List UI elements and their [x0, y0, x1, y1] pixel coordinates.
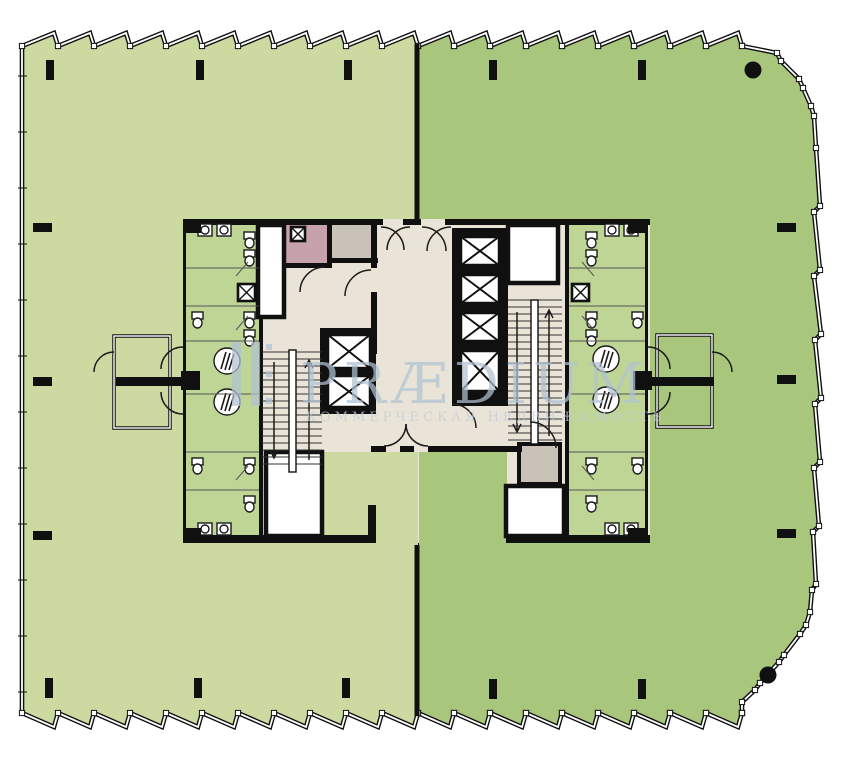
column: [33, 223, 52, 232]
column: [33, 377, 52, 386]
toilet-icon: [586, 312, 597, 328]
toilet-icon: [192, 312, 203, 328]
room-gray-top: [332, 225, 376, 262]
facade-node: [91, 710, 96, 715]
toilet-icon: [244, 312, 255, 328]
facade-node: [487, 710, 492, 715]
elevator-icon: [460, 236, 500, 266]
facade-node: [343, 710, 348, 715]
column: [489, 679, 497, 699]
lobby-door-gap-3: [383, 219, 403, 225]
column: [628, 528, 645, 542]
elevator-icon: [460, 274, 500, 304]
column: [184, 528, 201, 542]
facade-node: [800, 85, 805, 90]
round-column: [745, 62, 762, 79]
facade-node: [813, 581, 818, 586]
facade-node: [379, 43, 384, 48]
watermark-brand: PRÆDIUM: [300, 352, 649, 417]
facade-node: [307, 710, 312, 715]
facade-node: [667, 43, 672, 48]
facade-node: [163, 710, 168, 715]
facade-node: [127, 710, 132, 715]
facade-node: [271, 710, 276, 715]
toilet-icon: [632, 458, 643, 474]
facade-node: [811, 273, 816, 278]
facade-node: [812, 401, 817, 406]
toilet-icon: [586, 458, 597, 474]
core-top-wall: [183, 219, 650, 225]
facade-node: [523, 43, 528, 48]
facade-node: [523, 710, 528, 715]
facade-node: [19, 43, 24, 48]
column: [344, 60, 352, 80]
facade-node: [811, 465, 816, 470]
room-white-bottom-right: [506, 486, 564, 536]
toilet-icon: [244, 458, 255, 474]
elevator-icon: [460, 312, 500, 342]
toilet-icon: [632, 312, 643, 328]
facade-node: [803, 622, 808, 627]
column: [489, 60, 497, 80]
zone-divide-wall-top: [415, 44, 420, 224]
core-channel-right: [419, 452, 507, 545]
facade-node: [343, 43, 348, 48]
facade-node: [487, 43, 492, 48]
column: [196, 60, 204, 80]
facade-node: [808, 103, 813, 108]
toilet-icon: [586, 232, 597, 248]
column: [777, 223, 796, 232]
core-wall-notch: [368, 505, 376, 543]
room-white-top-right: [508, 225, 558, 283]
shaft-icon: [291, 227, 305, 241]
room-gray-bottom: [519, 444, 560, 484]
facade-node: [776, 659, 781, 664]
facade-node: [631, 710, 636, 715]
facade-node: [811, 113, 816, 118]
facade-node: [379, 710, 384, 715]
facade-node: [667, 710, 672, 715]
lobby-door-gap-4: [421, 219, 445, 225]
facade-node: [307, 43, 312, 48]
facade-node: [703, 710, 708, 715]
sink-icon: [217, 224, 231, 236]
facade-node: [595, 710, 600, 715]
facade-node: [127, 43, 132, 48]
facade-node: [271, 43, 276, 48]
facade-node: [816, 523, 821, 528]
column: [342, 678, 350, 698]
facade-node: [781, 652, 786, 657]
facade-node: [813, 145, 818, 150]
column: [638, 679, 646, 699]
shaft-icon: [572, 284, 589, 301]
watermark-tagline: КОММЕРЧЕСКАЯ НЕДВИЖИМОСТЬ: [306, 410, 665, 425]
column: [628, 219, 645, 233]
shaft-room-top-left: [258, 225, 284, 317]
toilet-icon: [192, 458, 203, 474]
facade-node: [235, 43, 240, 48]
toilet-icon: [586, 496, 597, 512]
toilet-icon: [586, 250, 597, 266]
lobby-wall-left-a: [371, 222, 377, 268]
column: [194, 678, 202, 698]
facade-node: [559, 710, 564, 715]
facade-node: [817, 459, 822, 464]
column: [777, 529, 796, 538]
facade-node: [199, 710, 204, 715]
facade-node: [817, 203, 822, 208]
facade-node: [818, 331, 823, 336]
facade-node: [595, 43, 600, 48]
column: [45, 678, 53, 698]
sink-icon: [605, 224, 619, 236]
facade-node: [703, 43, 708, 48]
column: [184, 219, 201, 233]
column: [33, 531, 52, 540]
column: [638, 60, 646, 80]
facade-node: [810, 529, 815, 534]
column: [777, 375, 796, 384]
column: [46, 60, 54, 80]
facade-node: [796, 76, 801, 81]
facade-node: [774, 50, 779, 55]
room-pink-wall-r: [327, 222, 332, 268]
hall-wall-bottom-right: [452, 446, 522, 452]
facade-node: [631, 43, 636, 48]
facade-node: [91, 43, 96, 48]
lobby-door-gap-1: [386, 446, 400, 452]
lobby-door-gap-2: [414, 446, 428, 452]
facade-node: [778, 58, 783, 63]
facade-node: [559, 43, 564, 48]
facade-node: [739, 699, 744, 704]
facade-node: [752, 687, 757, 692]
facade-node: [739, 710, 744, 715]
facade-node: [19, 710, 24, 715]
facade-node: [55, 43, 60, 48]
facade-node: [235, 710, 240, 715]
facade-node: [812, 337, 817, 342]
facade-node: [817, 267, 822, 272]
facade-node: [809, 587, 814, 592]
facade-node: [818, 395, 823, 400]
facade-node: [811, 209, 816, 214]
toilet-icon: [244, 232, 255, 248]
round-column: [760, 667, 777, 684]
facade-node: [163, 43, 168, 48]
facade-node: [451, 710, 456, 715]
facade-node: [451, 43, 456, 48]
toilet-icon: [244, 496, 255, 512]
facade-node: [757, 680, 762, 685]
sink-icon: [217, 523, 231, 535]
facade-node: [797, 631, 802, 636]
toilet-icon: [586, 330, 597, 346]
facade-node: [199, 43, 204, 48]
shaft-icon: [238, 284, 255, 301]
facade-node: [807, 609, 812, 614]
facade-node: [55, 710, 60, 715]
toilet-icon: [244, 250, 255, 266]
sink-icon: [605, 523, 619, 535]
floor-plan: PRÆDIUM КОММЕРЧЕСКАЯ НЕДВИЖИМОСТЬ: [0, 0, 842, 768]
facade-node: [739, 43, 744, 48]
